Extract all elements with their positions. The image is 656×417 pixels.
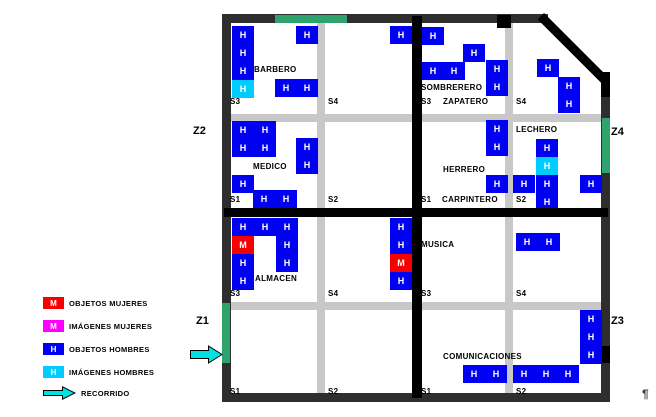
- sector-label-s3: S3: [230, 98, 240, 106]
- sector-label-s1: S1: [230, 196, 240, 204]
- imagenes-hombres-swatch: H: [43, 366, 64, 378]
- zone-label-z4: Z4: [611, 127, 624, 138]
- objetos-hombres-tile: H: [580, 310, 602, 328]
- legend-item-objetos-mujeres: M OBJETOS MUJERES: [43, 297, 148, 309]
- paragraph-mark: ¶: [642, 387, 649, 401]
- objetos-hombres-tile: H: [463, 44, 485, 62]
- objetos-mujeres-tile: M: [390, 254, 412, 272]
- imagenes-mujeres-swatch: M: [43, 320, 64, 332]
- objetos-hombres-tile: H: [232, 254, 254, 272]
- objetos-hombres-tile: H: [390, 26, 412, 44]
- objetos-hombres-tile: H: [232, 175, 254, 193]
- sector-label-s3: S3: [230, 290, 240, 298]
- district-label-sombrerero: SOMBRERERO: [421, 84, 482, 92]
- district-label-zapatero: ZAPATERO: [443, 98, 488, 106]
- sector-label-s2: S2: [516, 196, 526, 204]
- objetos-hombres-tile: H: [296, 26, 318, 44]
- sector-label-s2: S2: [328, 388, 338, 396]
- objetos-hombres-tile: H: [443, 62, 465, 80]
- objetos-hombres-tile: H: [390, 236, 412, 254]
- objetos-hombres-tile: H: [536, 193, 558, 208]
- sector-label-s3: S3: [421, 290, 431, 298]
- legend-item-label: OBJETOS MUJERES: [69, 299, 148, 308]
- objetos-hombres-tile: H: [296, 79, 318, 97]
- zone-label-z1: Z1: [196, 316, 209, 327]
- objetos-hombres-tile: H: [486, 60, 508, 78]
- sector-label-s4: S4: [516, 290, 526, 298]
- objetos-hombres-tile: H: [535, 365, 557, 383]
- objetos-hombres-tile: H: [537, 59, 559, 77]
- sector-label-s4: S4: [328, 98, 338, 106]
- objetos-hombres-tile: H: [276, 236, 298, 254]
- objetos-hombres-tile: H: [232, 139, 254, 157]
- objetos-hombres-tile: H: [253, 190, 275, 208]
- objetos-mujeres-tile: M: [232, 236, 254, 254]
- imagenes-hombres-tile: H: [536, 157, 558, 175]
- objetos-hombres-tile: H: [486, 78, 508, 96]
- objetos-hombres-tile: H: [232, 272, 254, 290]
- road-se-horizontal: [422, 302, 602, 310]
- zone-label-z3: Z3: [611, 316, 624, 327]
- objetos-hombres-tile: H: [486, 175, 508, 193]
- district-label-comunicaciones: COMUNICACIONES: [443, 353, 522, 361]
- objetos-hombres-tile: H: [390, 272, 412, 290]
- objetos-hombres-tile: H: [275, 190, 297, 208]
- wall-top-road-block: [497, 15, 511, 28]
- objetos-hombres-tile: H: [486, 138, 508, 156]
- district-label-barbero: BARBERO: [254, 66, 297, 74]
- objetos-mujeres-swatch: M: [43, 297, 64, 309]
- district-label-musica: MUSICA: [421, 241, 454, 249]
- objetos-hombres-tile: H: [580, 328, 602, 346]
- gate-left-z1: [222, 303, 230, 363]
- road-ne-horizontal: [422, 114, 602, 122]
- objetos-hombres-tile: H: [232, 26, 254, 44]
- district-label-medico: MEDICO: [253, 163, 287, 171]
- sector-label-s4: S4: [328, 290, 338, 298]
- legend-item-imagenes-mujeres: M IMÁGENES MUJERES: [43, 320, 152, 332]
- objetos-hombres-tile: H: [513, 365, 535, 383]
- district-label-lechero: LECHERO: [516, 126, 557, 134]
- objetos-hombres-tile: H: [558, 95, 580, 113]
- objetos-hombres-tile: H: [232, 62, 254, 80]
- sector-label-s1: S1: [230, 388, 240, 396]
- objetos-hombres-tile: H: [463, 365, 485, 383]
- sector-label-s2: S2: [328, 196, 338, 204]
- recorrido-arrow-icon: [43, 386, 76, 400]
- gate-right-z4: [602, 118, 610, 173]
- objetos-hombres-tile: H: [536, 139, 558, 157]
- objetos-hombres-tile: H: [232, 218, 254, 236]
- sector-label-s4: S4: [516, 98, 526, 106]
- objetos-hombres-tile: H: [422, 27, 444, 45]
- zone-label-z2: Z2: [193, 126, 206, 137]
- wall-right-upper: [601, 72, 610, 97]
- divider-vertical: [412, 16, 422, 398]
- objetos-hombres-tile: H: [536, 175, 558, 193]
- objetos-hombres-tile: H: [232, 44, 254, 62]
- legend-item-label: IMÁGENES HOMBRES: [69, 368, 154, 377]
- legend-item-recorrido: RECORRIDO: [43, 386, 130, 400]
- objetos-hombres-tile: H: [516, 233, 538, 251]
- objetos-hombres-tile: H: [557, 365, 579, 383]
- objetos-hombres-tile: H: [232, 121, 254, 139]
- objetos-hombres-tile: H: [296, 156, 318, 174]
- objetos-hombres-tile: H: [254, 139, 276, 157]
- objetos-hombres-swatch: H: [43, 343, 64, 355]
- legend-item-label: RECORRIDO: [81, 389, 130, 398]
- imagenes-hombres-tile: H: [232, 80, 254, 98]
- sector-label-s1: S1: [421, 388, 431, 396]
- district-label-almacen: ALMACEN: [255, 275, 297, 283]
- sector-label-s3: S3: [421, 98, 431, 106]
- objetos-hombres-tile: H: [538, 233, 560, 251]
- district-label-carpintero: CARPINTERO: [442, 196, 498, 204]
- sector-label-s1: S1: [421, 196, 431, 204]
- gate-top-z2: [275, 15, 347, 23]
- objetos-hombres-tile: H: [276, 254, 298, 272]
- district-label-herrero: HERRERO: [443, 166, 485, 174]
- objetos-hombres-tile: H: [254, 218, 276, 236]
- legend-item-label: OBJETOS HOMBRES: [69, 345, 150, 354]
- objetos-hombres-tile: H: [390, 218, 412, 236]
- objetos-hombres-tile: H: [254, 121, 276, 139]
- objetos-hombres-tile: H: [513, 175, 535, 193]
- legend-item-objetos-hombres: H OBJETOS HOMBRES: [43, 343, 150, 355]
- road-sw-horizontal: [231, 302, 412, 310]
- divider-horizontal: [224, 208, 608, 217]
- objetos-hombres-tile: H: [275, 79, 297, 97]
- objetos-hombres-tile: H: [296, 138, 318, 156]
- objetos-hombres-tile: H: [485, 365, 507, 383]
- sector-label-s2: S2: [516, 388, 526, 396]
- objetos-hombres-tile: H: [580, 346, 602, 364]
- objetos-hombres-tile: H: [276, 218, 298, 236]
- route-entry-arrow-icon: [190, 345, 223, 364]
- objetos-hombres-tile: H: [580, 175, 602, 193]
- objetos-hombres-tile: H: [558, 77, 580, 95]
- legend-item-label: IMÁGENES MUJERES: [69, 322, 152, 331]
- legend-item-imagenes-hombres: H IMÁGENES HOMBRES: [43, 366, 154, 378]
- objetos-hombres-tile: H: [422, 62, 444, 80]
- objetos-hombres-tile: H: [486, 120, 508, 138]
